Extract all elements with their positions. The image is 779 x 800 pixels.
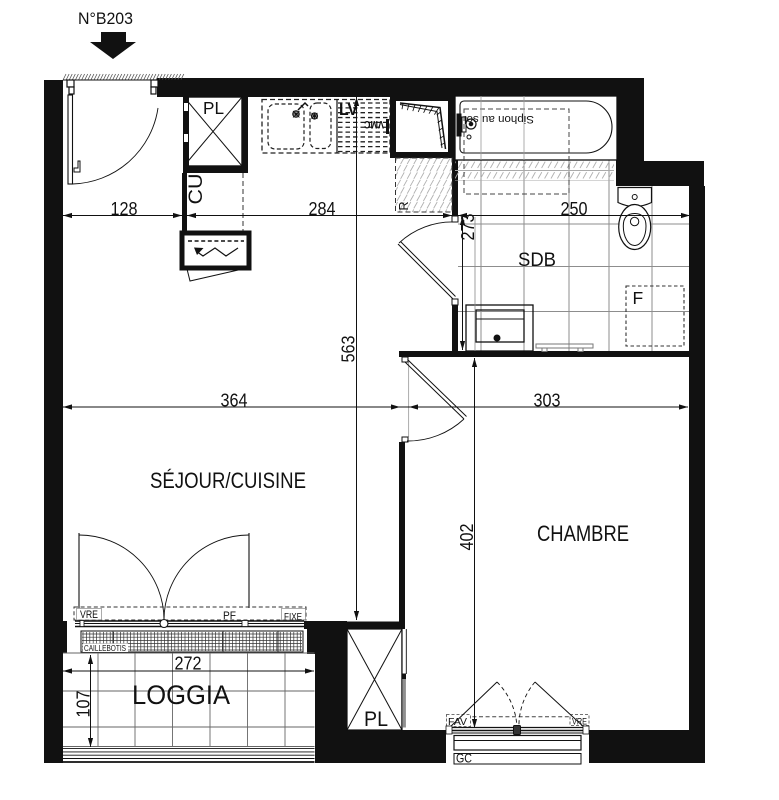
svg-text:284: 284 bbox=[309, 199, 336, 219]
svg-text:N°B203: N°B203 bbox=[78, 9, 133, 28]
svg-text:250: 250 bbox=[561, 199, 588, 219]
svg-text:563: 563 bbox=[339, 336, 359, 363]
svg-text:303: 303 bbox=[534, 391, 561, 411]
svg-text:Siphon au sol: Siphon au sol bbox=[464, 113, 534, 125]
svg-text:CU: CU bbox=[186, 174, 207, 205]
svg-text:SÉJOUR/CUISINE: SÉJOUR/CUISINE bbox=[150, 468, 306, 493]
svg-text:364: 364 bbox=[221, 391, 248, 411]
svg-text:272: 272 bbox=[175, 654, 202, 674]
svg-text:F: F bbox=[633, 288, 644, 308]
svg-text:107: 107 bbox=[74, 691, 94, 718]
svg-text:SDB: SDB bbox=[518, 249, 556, 271]
svg-text:VRE: VRE bbox=[80, 609, 98, 621]
svg-text:128: 128 bbox=[111, 199, 138, 219]
svg-text:PL: PL bbox=[364, 708, 388, 731]
svg-text:LOGGIA: LOGGIA bbox=[132, 680, 230, 710]
svg-text:PL: PL bbox=[203, 98, 224, 118]
svg-text:VMC: VMC bbox=[364, 118, 384, 130]
svg-text:PF: PF bbox=[223, 610, 236, 622]
svg-text:CAILLEBOTIS: CAILLEBOTIS bbox=[84, 643, 126, 653]
svg-text:R: R bbox=[397, 201, 411, 210]
svg-text:402: 402 bbox=[457, 524, 477, 551]
svg-text:GC: GC bbox=[456, 752, 472, 766]
svg-text:CHAMBRE: CHAMBRE bbox=[537, 521, 629, 546]
